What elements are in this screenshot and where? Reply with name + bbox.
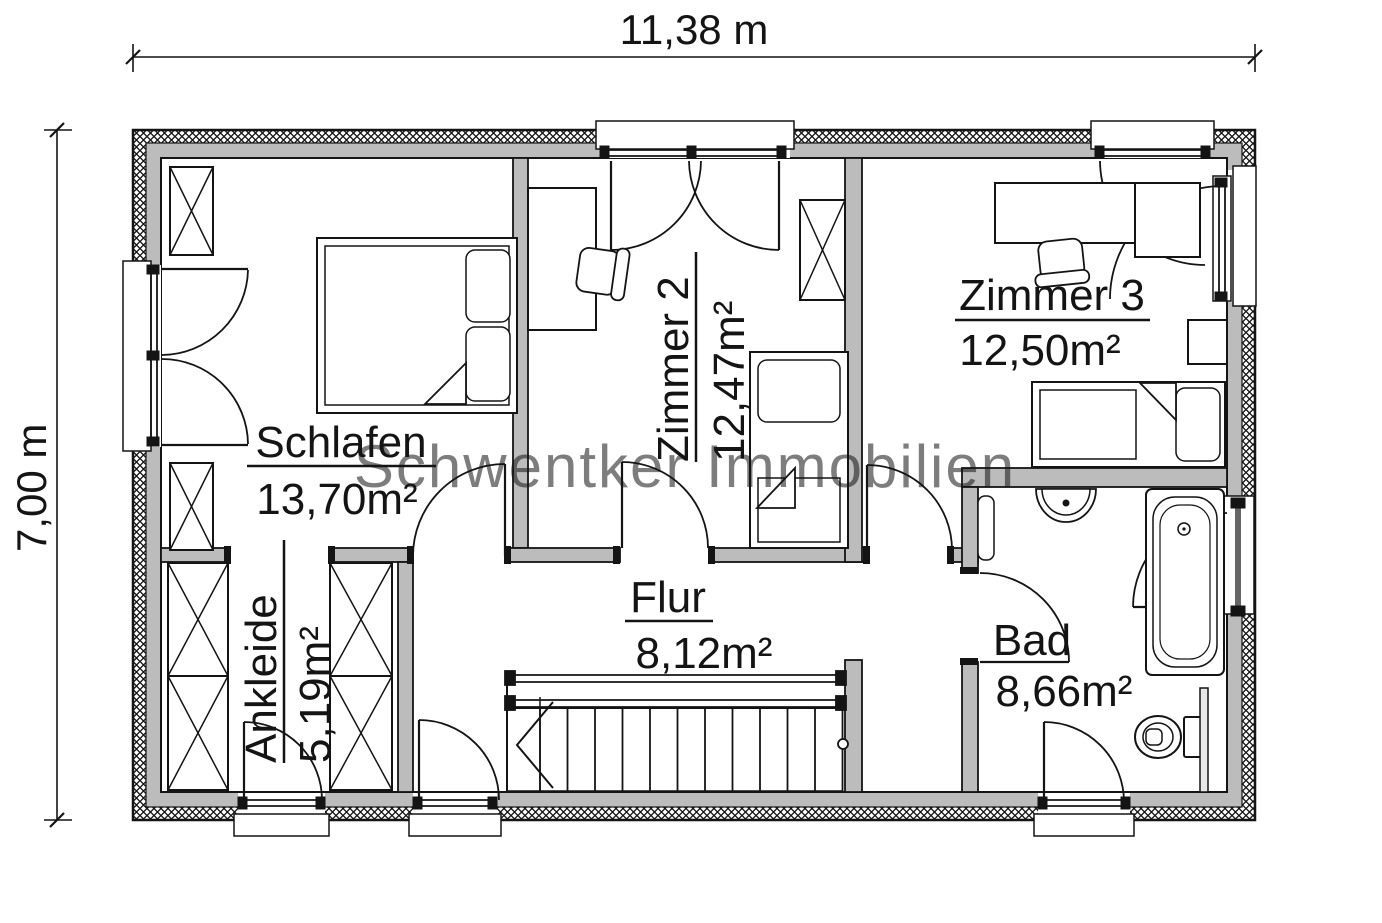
dimension-width-label: 11,38 m [620, 6, 769, 53]
wall-flur-top-a [505, 548, 620, 562]
shower-partition [1200, 688, 1208, 792]
dimension-top: 11,38 m [126, 6, 1262, 72]
bathtub [1146, 489, 1224, 675]
nightstand-zimmer3 [1188, 320, 1227, 364]
watermark-text: Schwentker Immobilien [354, 433, 1016, 500]
room-area-bad: 8,66m² [996, 667, 1133, 716]
room-area-ankleide: 5,19m² [291, 626, 340, 763]
dimension-height-label: 7,00 m [8, 424, 55, 552]
room-area-zimmer3: 12,50m² [959, 326, 1120, 375]
single-bed-zimmer3 [1032, 382, 1225, 467]
room-label-ankleide: Ankleide [237, 594, 286, 763]
wall-schlafen-ankleide-b [330, 548, 413, 562]
double-bed [317, 238, 517, 413]
radiator [978, 496, 994, 560]
wardrobe-icon-zimmer2 [800, 200, 845, 300]
room-label-zimmer3: Zimmer 3 [959, 271, 1145, 320]
toilet [1135, 716, 1206, 758]
room-label-bad: Bad [993, 616, 1071, 665]
floor-plan-page: Schlafen 13,70m² Zimmer 2 12,47m² Zimmer… [0, 0, 1382, 923]
wall-ankleide-flur [398, 562, 413, 792]
wall-flur-top-b [710, 548, 867, 562]
dimension-left: 7,00 m [8, 123, 72, 827]
wall-bad-left-lower [962, 662, 978, 792]
room-label-flur: Flur [630, 573, 706, 622]
wall-stairwell [845, 660, 862, 792]
floor-plan: Schlafen 13,70m² Zimmer 2 12,47m² Zimmer… [0, 0, 1382, 923]
room-area-flur: 8,12m² [636, 629, 773, 678]
